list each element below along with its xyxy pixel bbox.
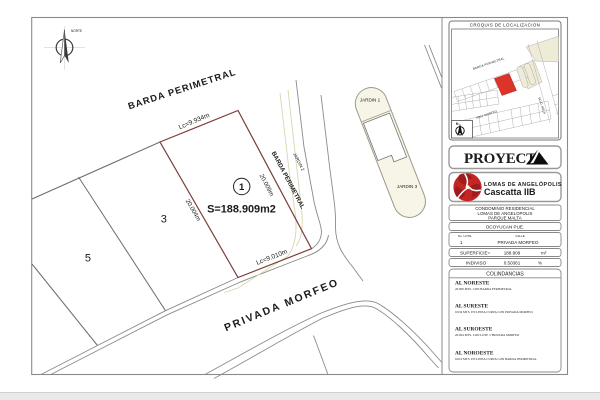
svg-text:1: 1 <box>239 182 245 193</box>
svg-text:AL NORESTE: AL NORESTE <box>455 281 490 287</box>
svg-text:5: 5 <box>85 252 91 264</box>
svg-text:AL SURESTE: AL SURESTE <box>455 304 489 310</box>
svg-text:20.004 MTS. CON LOTE 3 PRIVADA: 20.004 MTS. CON LOTE 3 PRIVADA MORFEO <box>455 333 520 337</box>
svg-text:1: 1 <box>460 240 463 245</box>
svg-text:JARDIN 1: JARDIN 1 <box>360 98 381 103</box>
svg-text:AL NOROESTE: AL NOROESTE <box>455 351 494 357</box>
svg-text:PROYECT: PROYECT <box>464 151 536 167</box>
svg-text:NORTE: NORTE <box>71 29 82 33</box>
svg-text:9.010 MTS. EN LINEA CURVA CON: 9.010 MTS. EN LINEA CURVA CON BARDA PERI… <box>455 357 537 361</box>
svg-text:No. LOTE: No. LOTE <box>458 234 471 238</box>
svg-text:%: % <box>538 261 542 266</box>
svg-text:JARDIN 3: JARDIN 3 <box>397 184 418 189</box>
svg-text:m²: m² <box>541 251 547 256</box>
svg-text:S=188.909m2: S=188.909m2 <box>207 204 276 216</box>
svg-text:AL SUROESTE: AL SUROESTE <box>455 327 493 333</box>
svg-text:OCOYUCAN PUE.: OCOYUCAN PUE. <box>486 225 525 230</box>
svg-text:CALLE: CALLE <box>515 234 525 238</box>
svg-text:0.50361: 0.50361 <box>504 261 521 266</box>
svg-text:N: N <box>456 122 459 126</box>
svg-text:COLINDANCIAS: COLINDANCIAS <box>486 272 524 278</box>
svg-text:PARQUE MALTA: PARQUE MALTA <box>488 216 521 221</box>
svg-text:3: 3 <box>161 214 167 226</box>
svg-text:SUPERFICIE=: SUPERFICIE= <box>460 251 491 256</box>
svg-text:INDIVISO: INDIVISO <box>466 261 487 266</box>
svg-text:20.009 MTS. CON BARDA PERIMETR: 20.009 MTS. CON BARDA PERIMETRAL <box>455 287 512 291</box>
svg-text:PRIVADA MORFEO: PRIVADA MORFEO <box>497 240 538 245</box>
svg-text:Cascatta IIB: Cascatta IIB <box>484 187 536 197</box>
svg-text:9.934 MTS. EN LINEA CURVA CON: 9.934 MTS. EN LINEA CURVA CON PRIVADA MO… <box>455 310 533 314</box>
svg-text:188.909: 188.909 <box>504 251 521 256</box>
svg-text:CROQUIS DE LOCALIZACION: CROQUIS DE LOCALIZACION <box>470 23 540 28</box>
